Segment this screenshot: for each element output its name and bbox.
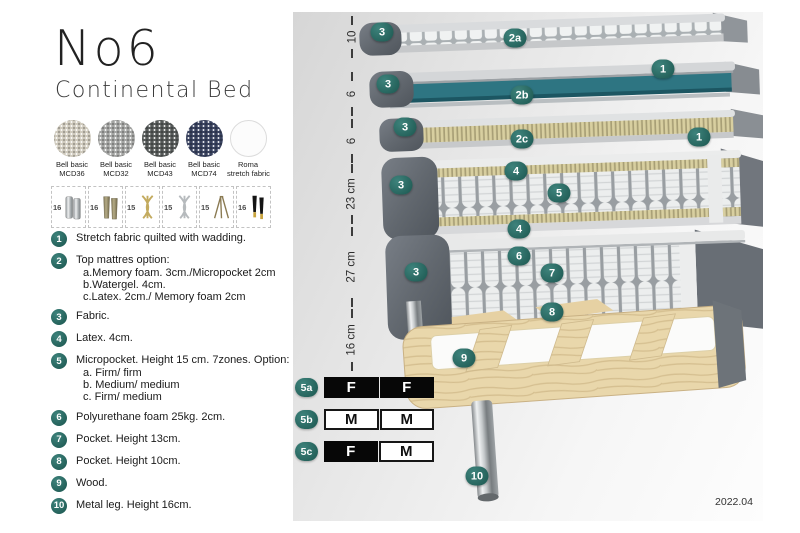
product-diagram-panel: 10 6 6 23 cm 27 cm 16 cm 3 2a 1 3 2b 3 2… (293, 12, 763, 521)
diagram-badge: 10 (466, 467, 489, 486)
diagram-badge: 1 (688, 128, 711, 147)
spec-item-text: Polyurethane foam 25kg. 2cm. (76, 410, 225, 424)
spec-item-text: Micropocket. Height 15 cm. 7zones. Optio… (76, 353, 289, 367)
leg-option: 15 (125, 186, 160, 228)
page: { "header": { "title": "No6", "subtitle"… (0, 0, 800, 533)
dimension-tick (351, 16, 353, 25)
dimension-label: 23 cm (339, 164, 365, 224)
firmness-badge: 5b (295, 410, 318, 429)
diagram-badge: 2b (511, 86, 534, 105)
firmness-table: M M (324, 409, 434, 430)
spec-item-number: 5 (51, 353, 67, 369)
dimension-tick (351, 49, 353, 58)
fabric-swatch: Bell basic MCD43 (139, 120, 181, 178)
firmness-cell: F (380, 377, 435, 398)
dimension-label: 6 (339, 119, 365, 163)
page-title: No6 (54, 20, 161, 77)
leg-option: 16 (88, 186, 123, 228)
dimension-label: 27 cm (339, 227, 365, 307)
spec-item: 3 Fabric. (51, 309, 293, 325)
spec-item-text: Wood. (76, 476, 108, 490)
firmness-cell: M (380, 409, 435, 430)
dimension-tick (351, 309, 353, 318)
fabric-swatches: Bell basic MCD36 Bell basic MCD32 Bell b… (51, 120, 269, 178)
firmness-table-row: 5b M M (295, 409, 434, 430)
diagram-badge: 3 (390, 176, 413, 195)
fabric-swatch-mcd32-icon (98, 120, 135, 157)
dimension-tick (351, 362, 353, 371)
page-subtitle: Continental Bed (55, 78, 254, 103)
leg-tapered-pair-icon (100, 192, 121, 222)
firmness-table-row: 5c F M (295, 441, 434, 462)
leg-height-label: 15 (127, 203, 137, 212)
leg-height-label: 16 (90, 203, 100, 212)
fabric-swatch-label: Bell basic MCD32 (95, 161, 137, 178)
spec-item-options: a.Memory foam. 3cm./Micropocket 2cm b.Wa… (83, 268, 293, 303)
leg-hairpin-icon (211, 192, 232, 222)
layer-topper-2b (369, 59, 760, 110)
spec-item: 8 Pocket. Height 10cm. (51, 454, 293, 470)
fabric-swatch: Bell basic MCD36 (51, 120, 93, 178)
fabric-swatch-mcd74-icon (186, 120, 223, 157)
diagram-badge: 2a (504, 29, 527, 48)
diagram-badge: 3 (371, 23, 394, 42)
spec-item: 10 Metal leg. Height 16cm. (51, 498, 293, 514)
diagram-badge: 1 (652, 60, 675, 79)
fabric-swatch-label: Bell basic MCD74 (183, 161, 225, 178)
firmness-cell: M (324, 409, 379, 430)
layer-topper-2a (359, 12, 748, 56)
dimension-tick (351, 119, 353, 128)
diagram-badge: 4 (505, 162, 528, 181)
diagram-badge: 3 (405, 263, 428, 282)
fabric-swatch: Bell basic MCD32 (95, 120, 137, 178)
dimension-tick (351, 215, 353, 224)
firmness-cell: F (324, 441, 378, 462)
leg-height-label: 16 (53, 203, 63, 212)
spec-list: 1 Stretch fabric quilted with wadding. 2… (51, 231, 293, 520)
spec-item-number: 6 (51, 410, 67, 426)
version-label: 2022.04 (715, 496, 753, 508)
firmness-badge: 5c (295, 442, 318, 461)
leg-option: 15 (199, 186, 234, 228)
leg-cylinder-pair-icon (63, 192, 84, 222)
dimension-tick (351, 107, 353, 116)
spec-item-text: Latex. 4cm. (76, 331, 133, 345)
spec-item-number: 9 (51, 476, 67, 492)
firmness-table: F F (324, 377, 434, 398)
leg-option: 15 (162, 186, 197, 228)
dimension-tick (351, 154, 353, 163)
layer-main-mattress (381, 145, 763, 240)
firmness-badge: 5a (295, 378, 318, 397)
fabric-swatch-mcd36-icon (54, 120, 91, 157)
spec-item-options: a. Firm/ firm b. Medium/ medium c. Firm/… (83, 368, 293, 403)
leg-height-label: 15 (164, 203, 174, 212)
dimension-label: 6 (339, 72, 365, 116)
spec-item-text: Metal leg. Height 16cm. (76, 498, 192, 512)
firmness-table-row: 5a F F (295, 377, 434, 398)
diagram-badge: 5 (548, 184, 571, 203)
spec-item: 4 Latex. 4cm. (51, 331, 293, 347)
firmness-table: F M (324, 441, 434, 462)
spec-item: 6 Polyurethane foam 25kg. 2cm. (51, 410, 293, 426)
diagram-badge: 2c (511, 130, 534, 149)
spec-item-number: 8 (51, 454, 67, 470)
fabric-swatch-roma-icon (230, 120, 267, 157)
spec-item-text: Pocket. Height 10cm. (76, 454, 181, 468)
dimension-label: 16 cm (339, 309, 365, 371)
spec-item-number: 10 (51, 498, 67, 514)
spec-item: 9 Wood. (51, 476, 293, 492)
fabric-swatch: Bell basic MCD74 (183, 120, 225, 178)
leg-option: 16 (236, 186, 271, 228)
firmness-cell: M (379, 441, 435, 462)
leg-height-label: 16 (238, 203, 248, 212)
diagram-badge: 8 (541, 303, 564, 322)
dimension-label: 10 (339, 16, 365, 58)
dimension-tick (351, 298, 353, 307)
leg-option: 16 (51, 186, 86, 228)
leg-options: 16 16 15 15 15 16 (51, 186, 271, 228)
leg-crossed-gold-icon (137, 192, 158, 222)
spec-item-text: Stretch fabric quilted with wadding. (76, 231, 246, 245)
spec-item-number: 1 (51, 231, 67, 247)
fabric-swatch-label: Bell basic MCD43 (139, 161, 181, 178)
diagram-badge: 4 (508, 220, 531, 239)
dimension-tick (351, 227, 353, 236)
leg-black-gold-pair-icon (248, 192, 269, 222)
diagram-badge: 9 (453, 349, 476, 368)
spec-item: 1 Stretch fabric quilted with wadding. (51, 231, 293, 247)
spec-item-number: 7 (51, 432, 67, 448)
diagram-badge: 6 (508, 247, 531, 266)
fabric-swatch-label: Roma stretch fabric (227, 161, 269, 178)
fabric-swatch: Roma stretch fabric (227, 120, 269, 178)
dimension-tick (351, 164, 353, 173)
spec-item-text: Fabric. (76, 309, 110, 323)
fabric-swatch-mcd43-icon (142, 120, 179, 157)
spec-item-text: Pocket. Height 13cm. (76, 432, 181, 446)
leg-crossed-silver-icon (174, 192, 195, 222)
spec-item-number: 2 (51, 253, 67, 269)
fabric-swatch-label: Bell basic MCD36 (51, 161, 93, 178)
firmness-cell: F (324, 377, 379, 398)
spec-item-number: 3 (51, 309, 67, 325)
diagram-badge: 7 (541, 264, 564, 283)
leg-height-label: 15 (201, 203, 211, 212)
spec-item-text: Top mattres option: (76, 253, 170, 267)
spec-item: 7 Pocket. Height 13cm. (51, 432, 293, 448)
dimension-tick (351, 72, 353, 81)
diagram-badge: 3 (377, 75, 400, 94)
spec-item-number: 4 (51, 331, 67, 347)
diagram-badge: 3 (394, 118, 417, 137)
